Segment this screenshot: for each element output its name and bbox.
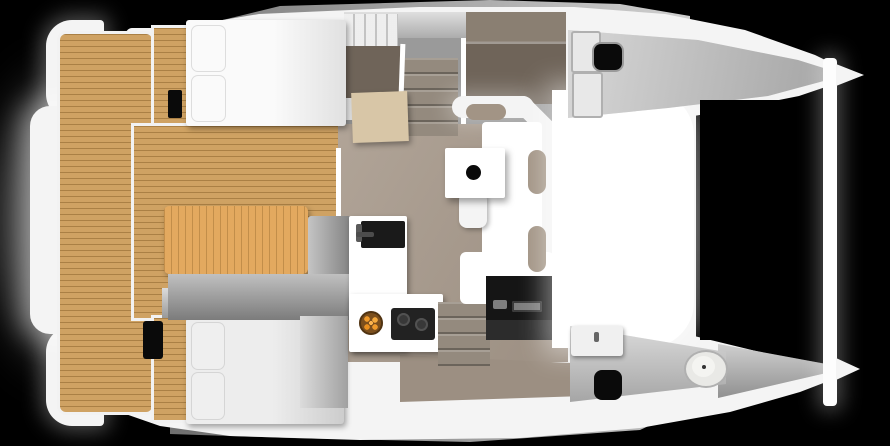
galley-cooktop [391,308,435,340]
forward-crossbeam [823,58,837,406]
head-vanity-faucet [594,332,599,342]
cooktop-burner-2 [415,318,428,331]
catamaran-floorplan-scene [0,0,890,446]
fruit-oranges [361,313,381,333]
port-hull-stairs [404,58,458,136]
galley-side-cabinet [300,316,348,408]
starboard-bow-fitting [836,358,860,380]
head-hatch-black [594,370,622,400]
toilet-button [702,365,706,369]
port-cabin-window [168,90,182,118]
salon-desk [351,91,409,143]
port-bed-pillow-2 [191,75,226,122]
trampoline [700,100,820,340]
sofa-cushion-1 [528,150,546,194]
cooktop-burner-1 [397,313,410,326]
galley-faucet-arm [356,232,374,237]
foredeck [552,90,694,348]
nav-station-cabinet [486,276,554,322]
salon-table-bowl [466,165,481,180]
cockpit-table [164,206,308,274]
cockpit-bench-horizontal [168,274,352,320]
port-hull-berth-forward [466,12,566,104]
port-bed-pillow-1 [191,25,226,72]
port-bow-fitting [836,62,864,88]
port-foredeck-hatch-white-2 [572,72,603,118]
sofa-cushion-2 [528,226,546,272]
starboard-hull-stairs [438,302,490,366]
nav-equipment-2 [512,301,542,312]
starboard-cabin-window [143,321,163,359]
starboard-bed-pillow-2 [191,372,225,420]
sofa-headrest-cushion [466,104,506,120]
nav-equipment-1 [493,300,507,309]
port-hull-berth-aft [340,46,400,98]
port-foredeck-hatch-black [594,44,622,70]
starboard-bed-pillow-1 [191,322,225,370]
